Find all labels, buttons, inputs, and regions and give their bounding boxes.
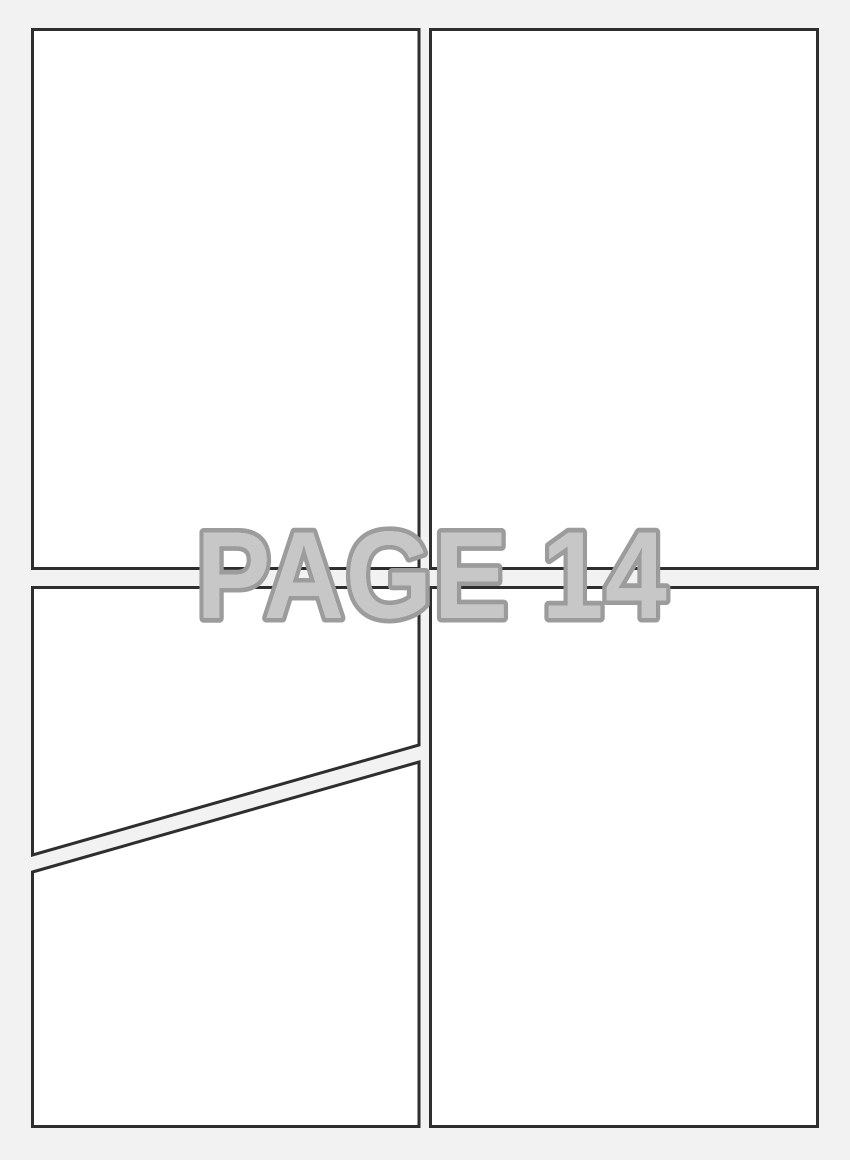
comic-page-svg: PAGE 14 PAGE 14 bbox=[0, 0, 850, 1160]
panel-top-right bbox=[431, 30, 818, 569]
panel-bottom-right bbox=[431, 588, 818, 1127]
comic-page-template: PAGE 14 PAGE 14 bbox=[0, 0, 850, 1160]
page-watermark-text-fill: PAGE 14 bbox=[196, 507, 668, 645]
panel-top-left bbox=[33, 30, 420, 569]
